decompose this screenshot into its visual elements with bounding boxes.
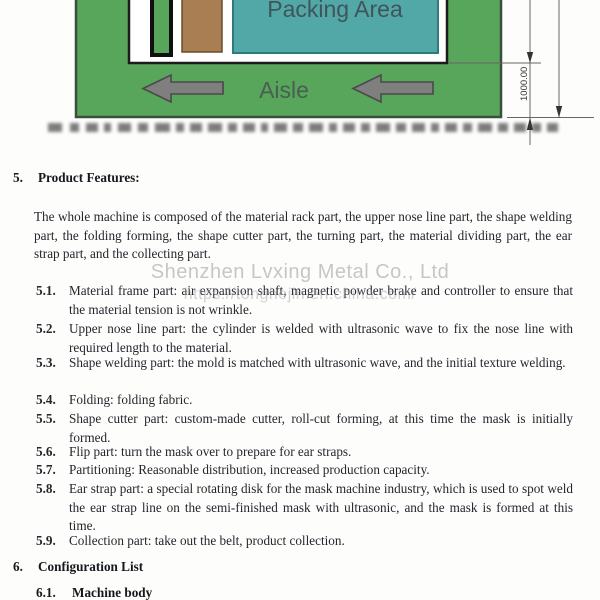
- section-title: Product Features:: [38, 170, 140, 185]
- item-text: Folding: folding fabric.: [69, 392, 192, 407]
- item-text: Upper nose line part: the cylinder is we…: [69, 321, 573, 355]
- door-element: [152, 0, 171, 55]
- feature-item-5-5: 5.5.Shape cutter part: custom-made cutte…: [36, 410, 573, 447]
- item-number: 5.4.: [36, 391, 56, 410]
- section-heading-configuration-list: 6.Configuration List: [13, 558, 143, 577]
- blurred-dimension-strip: [48, 123, 558, 132]
- item-text: Ear strap part: a special rotating disk …: [69, 481, 573, 533]
- item-number: 5.8.: [36, 480, 56, 499]
- document-page: Packing Area Aisle 1000.00 Shenzhen Lvxi…: [0, 0, 600, 600]
- item-number: 5.7.: [36, 461, 56, 480]
- feature-item-5-3: 5.3.Shape welding part: the mold is matc…: [36, 354, 573, 373]
- features-intro-paragraph: The whole machine is composed of the mat…: [34, 208, 572, 264]
- packing-area-label: Packing Area: [267, 0, 403, 22]
- item-number: 5.1.: [36, 282, 56, 301]
- feature-item-5-1: 5.1.Material frame part: air expansion s…: [36, 282, 573, 319]
- item-number: 5.2.: [36, 320, 56, 339]
- item-text: Shape welding part: the mold is matched …: [69, 355, 566, 370]
- item-number: 5.3.: [36, 354, 56, 373]
- dimension-arrowheads: [527, 52, 562, 130]
- section-number: 5.: [13, 169, 38, 188]
- section-heading-product-features: 5.Product Features:: [13, 169, 140, 188]
- feature-item-5-2: 5.2.Upper nose line part: the cylinder i…: [36, 320, 573, 357]
- subsection-heading-machine-body: 6.1.Machine body: [36, 584, 152, 600]
- item-text: Collection part: take out the belt, prod…: [69, 533, 345, 548]
- item-number: 5.6.: [36, 443, 56, 462]
- subsection-title: Machine body: [72, 585, 152, 600]
- feature-item-5-4: 5.4.Folding: folding fabric.: [36, 391, 573, 410]
- item-text: Material frame part: air expansion shaft…: [69, 283, 573, 317]
- rack-element: [182, 0, 222, 52]
- feature-item-5-7: 5.7.Partitioning: Reasonable distributio…: [36, 461, 573, 480]
- item-number: 5.5.: [36, 410, 56, 429]
- subsection-number: 6.1.: [36, 584, 72, 600]
- aisle-label: Aisle: [259, 77, 309, 103]
- feature-item-5-9: 5.9.Collection part: take out the belt, …: [36, 532, 573, 551]
- item-number: 5.9.: [36, 532, 56, 551]
- section-number: 6.: [13, 558, 38, 577]
- floor-plan-diagram: Packing Area Aisle 1000.00: [0, 0, 600, 150]
- section-title: Configuration List: [38, 559, 143, 574]
- item-text: Flip part: turn the mask over to prepare…: [69, 444, 351, 459]
- feature-item-5-8: 5.8.Ear strap part: a special rotating d…: [36, 480, 573, 536]
- item-text: Partitioning: Reasonable distribution, i…: [69, 462, 430, 477]
- dimension-value-label: 1000.00: [519, 67, 530, 101]
- watermark-company-name: Shenzhen Lvxing Metal Co., Ltd: [0, 261, 600, 284]
- item-text: Shape cutter part: custom-made cutter, r…: [69, 411, 573, 445]
- feature-item-5-6: 5.6.Flip part: turn the mask over to pre…: [36, 443, 573, 462]
